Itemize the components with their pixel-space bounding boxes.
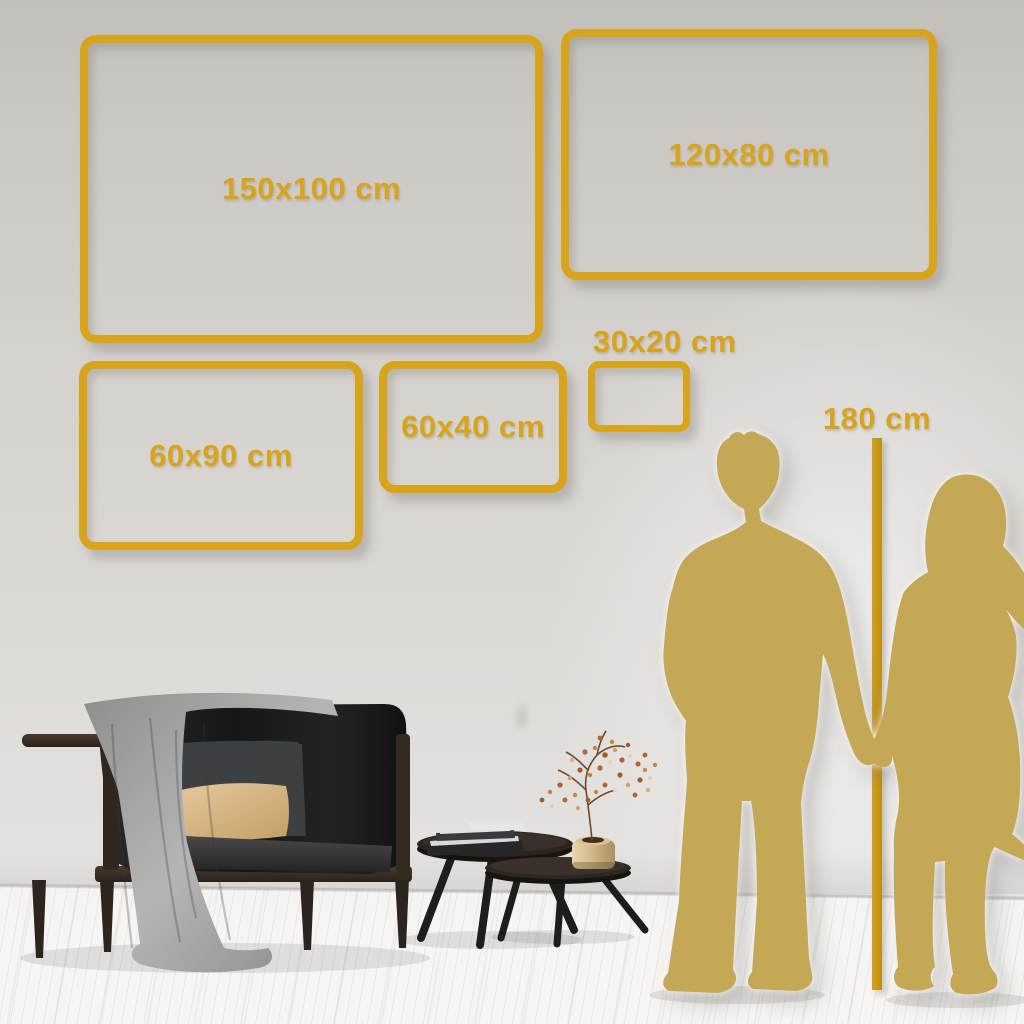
size-comparison-scene: 150x100 cm 120x80 cm 60x90 cm 60x40 cm 3… — [0, 0, 1024, 1024]
tan-pillow — [171, 783, 289, 840]
coffee-tables — [417, 731, 657, 945]
man-silhouette — [663, 431, 879, 993]
brass-vase — [572, 837, 615, 870]
sofa — [22, 693, 412, 972]
woman-silhouette — [868, 474, 1024, 994]
sofa-right-frame-bar — [396, 734, 410, 880]
scene-svg — [0, 0, 1024, 1024]
dried-flower-branch — [540, 731, 658, 840]
book-stack — [426, 821, 525, 856]
couple-silhouettes — [663, 431, 1024, 994]
